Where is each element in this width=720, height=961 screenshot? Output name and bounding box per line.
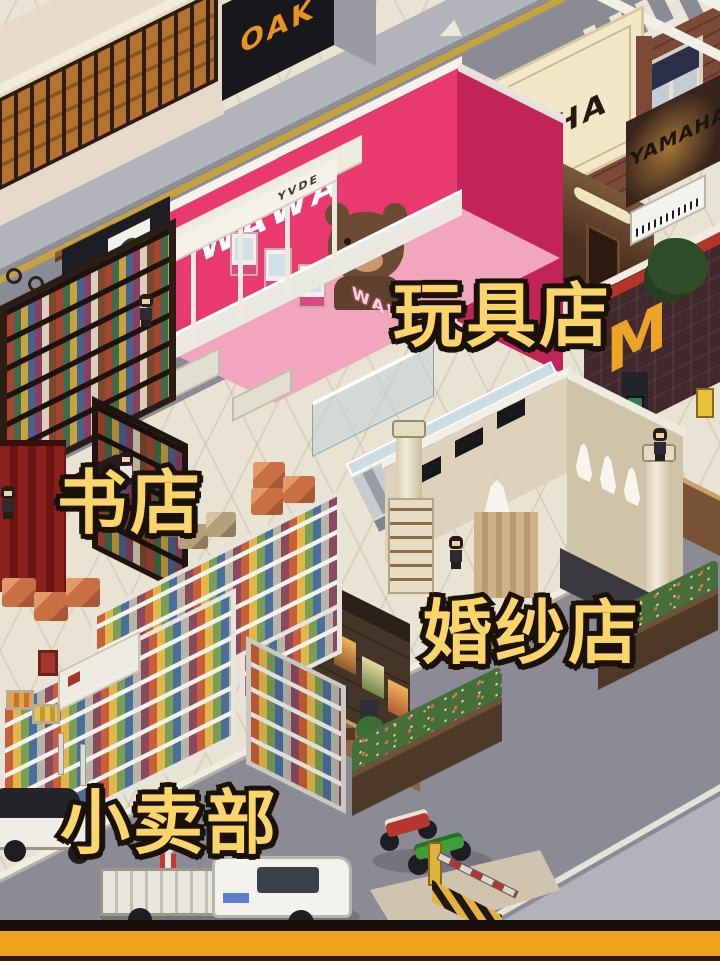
- fastfood-customer-figure: [652, 428, 668, 462]
- wedding-gown: [599, 451, 617, 496]
- barrier-post: [428, 842, 442, 886]
- car-wheel: [4, 840, 26, 862]
- ottoman-cube: [251, 488, 283, 515]
- bottom-bar-dark-edge: [0, 956, 720, 961]
- wedding-customer-figure: [448, 536, 464, 570]
- tv-frame: [455, 427, 483, 458]
- clerk-figure: [138, 294, 154, 328]
- yamaha-shop-sign: YAMAHA: [630, 102, 720, 172]
- ottoman-cube: [253, 462, 285, 489]
- ottoman-cube: [283, 476, 315, 503]
- bride-mannequin-head: [492, 470, 502, 480]
- bottom-bar-black-line: [0, 920, 720, 931]
- ottoman-cube: [2, 578, 36, 607]
- wedding-gown: [575, 439, 593, 484]
- fruit-crate: [32, 704, 60, 724]
- wedding-gown: [623, 463, 641, 508]
- fitting-curtain: [474, 512, 538, 598]
- bottom-bar-yellow: [0, 931, 720, 956]
- truck-windshield: [257, 867, 319, 893]
- ottoman-cube: [206, 512, 236, 537]
- menu-poster: [362, 656, 384, 699]
- security-gate: [80, 744, 86, 786]
- fruit-crate: [6, 690, 34, 710]
- price-decal: [68, 671, 80, 687]
- pixel-mall-scene: OAK YAMAHA YAMAHA: [0, 0, 720, 961]
- ottoman-cube: [66, 578, 100, 607]
- security-gate: [58, 733, 64, 775]
- oak-sign: OAK: [240, 0, 315, 60]
- passerby-figure: [0, 486, 16, 520]
- truck-decal: [223, 893, 249, 903]
- label-wedding-store: 婚纱店: [422, 598, 641, 668]
- label-book-store: 书店: [57, 468, 203, 538]
- parked-bicycle-icon: [6, 268, 22, 284]
- roman-column-capital: [392, 420, 426, 438]
- wedding-menu-board: [388, 498, 434, 594]
- tree-foliage-icon: [648, 238, 708, 294]
- claw-machine-base: [300, 297, 324, 306]
- banner-sign: [696, 388, 714, 418]
- ottoman-cube: [34, 592, 68, 621]
- label-kiosk: 小卖部: [60, 788, 279, 858]
- truck-bed: [100, 868, 218, 916]
- label-toy-store: 玩具店: [393, 281, 612, 351]
- kiosk-wall-sign: [38, 650, 58, 676]
- truck-cab: [212, 856, 352, 918]
